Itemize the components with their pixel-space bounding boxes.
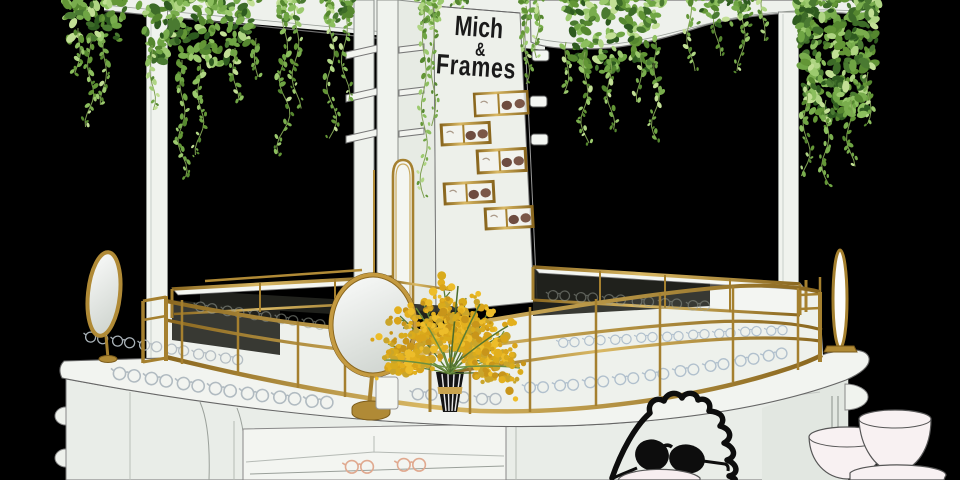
svg-text:Frames: Frames [435,48,517,85]
